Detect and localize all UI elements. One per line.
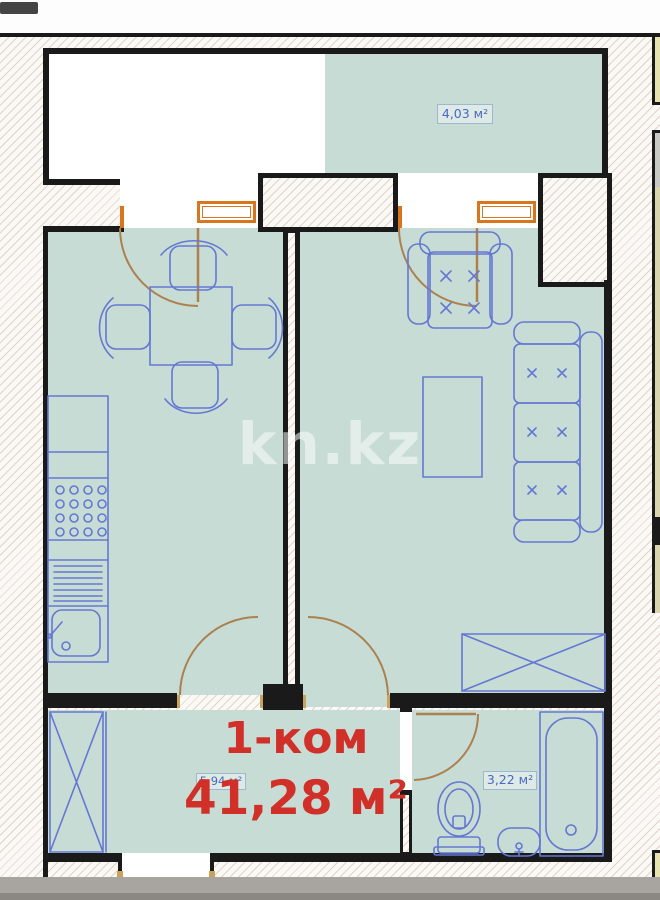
armchair-icon: [408, 232, 512, 328]
stove-icon: [56, 486, 106, 536]
hall-closet-icon: [50, 712, 106, 852]
rooms-count-title: 1-ком: [136, 717, 456, 761]
photo-bottom-strip: [0, 877, 660, 900]
bathtub-icon: [540, 712, 603, 856]
chair-icon: [100, 241, 283, 414]
sofa-icon: [514, 322, 602, 542]
watermark: kn.kz: [210, 410, 450, 478]
floor-plan: 4,03 м² 5,94 м² 3,22 м² 1-ком 41,28 м² k…: [0, 0, 660, 900]
total-area-title: 41,28 м²: [136, 775, 456, 822]
dining-table-icon: [150, 287, 232, 365]
bathroom-area-label: 3,22 м²: [483, 771, 537, 790]
drainboard-icon: [54, 566, 102, 601]
washbasin-icon: [498, 828, 540, 856]
kitchen-sink-icon: [48, 610, 100, 656]
wardrobe-icon: [462, 634, 605, 691]
balcony-area-label: 4,03 м²: [437, 104, 493, 124]
door-swing-icon: [120, 228, 478, 780]
